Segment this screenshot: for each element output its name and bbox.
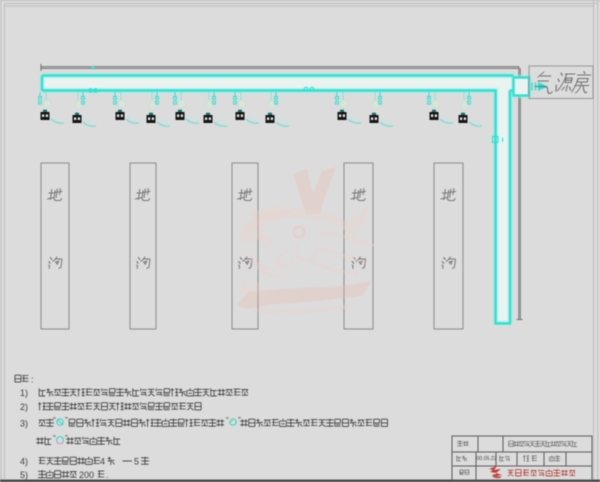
svg-text:“: “ [53,434,56,443]
svg-text:”: ” [238,416,241,425]
svg-text:.: . [106,470,109,480]
svg-text:“: “ [226,416,229,425]
svg-text:5: 5 [134,457,139,467]
svg-text:”: ” [65,416,68,425]
svg-text:2): 2) [20,402,28,412]
svg-text:00.05.22: 00.05.22 [477,456,497,462]
svg-text:“: “ [53,416,56,425]
svg-text:200: 200 [79,470,94,480]
svg-text::: : [31,375,34,385]
svg-text:4): 4) [20,457,28,467]
svg-text:3): 3) [20,419,28,429]
svg-text:”: ” [65,434,68,443]
svg-text:4: 4 [100,457,105,467]
svg-text:1): 1) [20,388,28,398]
svg-text:5): 5) [20,470,28,480]
